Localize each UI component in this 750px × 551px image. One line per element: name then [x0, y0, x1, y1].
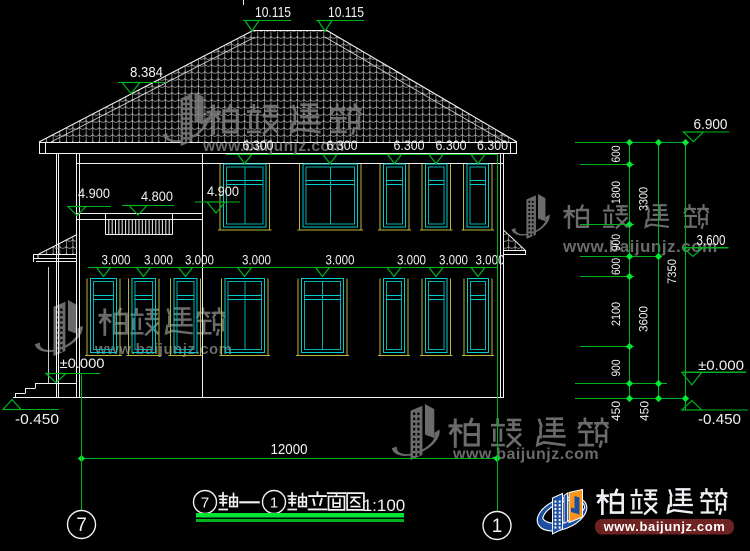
svg-text:3.000: 3.000 — [144, 252, 173, 268]
svg-text:3.000: 3.000 — [476, 252, 505, 268]
svg-text:600: 600 — [609, 145, 623, 162]
svg-text:3.000: 3.000 — [439, 252, 468, 268]
svg-text:2100: 2100 — [609, 302, 623, 326]
svg-text:www.baijunjz.com: www.baijunjz.com — [452, 446, 599, 463]
svg-text:7: 7 — [76, 515, 87, 536]
svg-text:3.600: 3.600 — [697, 232, 726, 249]
svg-text:450: 450 — [609, 401, 623, 421]
svg-text:7: 7 — [201, 495, 209, 512]
svg-text:6.300: 6.300 — [394, 137, 425, 153]
svg-text:www.baijunjz.com: www.baijunjz.com — [562, 237, 718, 256]
svg-text:1: 1 — [270, 495, 278, 512]
svg-text:3.000: 3.000 — [185, 252, 214, 268]
svg-text:900: 900 — [609, 234, 623, 251]
svg-text:12000: 12000 — [271, 441, 308, 458]
svg-text:6.900: 6.900 — [694, 116, 728, 133]
svg-text:±0.000: ±0.000 — [698, 357, 744, 373]
svg-text:450: 450 — [638, 401, 652, 421]
svg-text:7350: 7350 — [665, 259, 679, 284]
svg-text:3.000: 3.000 — [397, 252, 426, 268]
svg-text:3300: 3300 — [637, 187, 651, 211]
svg-text:-0.450: -0.450 — [15, 411, 59, 428]
svg-text:6.300: 6.300 — [436, 137, 467, 153]
svg-text:10.115: 10.115 — [255, 4, 291, 21]
svg-text:10.115: 10.115 — [328, 4, 364, 21]
svg-text:3.000: 3.000 — [102, 252, 131, 268]
svg-text:3.000: 3.000 — [242, 252, 271, 268]
svg-text:3600: 3600 — [637, 306, 651, 332]
svg-text:4.800: 4.800 — [141, 188, 173, 204]
svg-text:4.900: 4.900 — [207, 183, 239, 199]
svg-text:6.300: 6.300 — [477, 137, 508, 153]
svg-text:1:100: 1:100 — [363, 496, 406, 515]
svg-text:6.300: 6.300 — [243, 137, 274, 153]
svg-text:600: 600 — [609, 258, 623, 275]
svg-text:-0.450: -0.450 — [698, 411, 741, 428]
svg-text:8.384: 8.384 — [130, 64, 163, 81]
svg-text:www.baijunjz.com: www.baijunjz.com — [603, 519, 726, 534]
svg-text:6.300: 6.300 — [327, 137, 358, 153]
svg-text:4.900: 4.900 — [78, 185, 110, 201]
svg-text:1800: 1800 — [609, 181, 623, 204]
svg-text:1: 1 — [492, 516, 503, 537]
svg-text:±0.000: ±0.000 — [60, 355, 105, 371]
svg-text:900: 900 — [609, 359, 623, 376]
svg-text:3.000: 3.000 — [326, 252, 355, 268]
